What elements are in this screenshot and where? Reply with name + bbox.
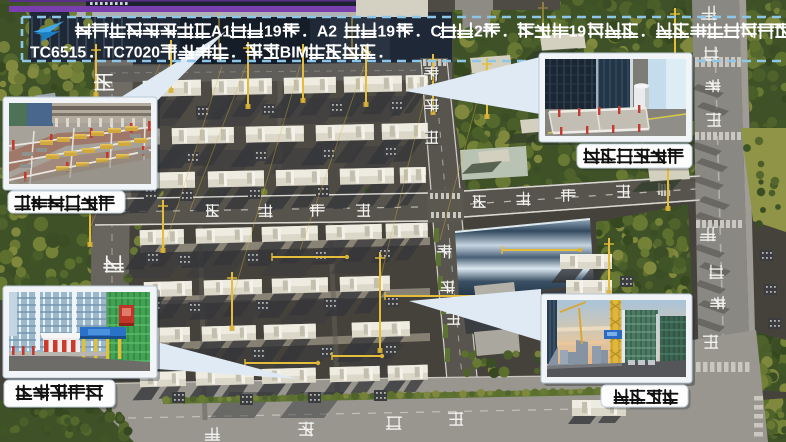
svg-text:TC6515: TC6515 bbox=[30, 44, 86, 61]
svg-text:19: 19 bbox=[378, 23, 396, 40]
svg-text:2: 2 bbox=[474, 23, 483, 40]
svg-text:BIM: BIM bbox=[280, 44, 309, 61]
svg-text:C: C bbox=[431, 23, 442, 40]
svg-text:A1: A1 bbox=[211, 23, 231, 40]
svg-text:A2: A2 bbox=[317, 23, 337, 40]
svg-text:19: 19 bbox=[264, 23, 282, 40]
svg-text:19: 19 bbox=[569, 23, 587, 40]
svg-text:TC7020: TC7020 bbox=[104, 44, 160, 61]
